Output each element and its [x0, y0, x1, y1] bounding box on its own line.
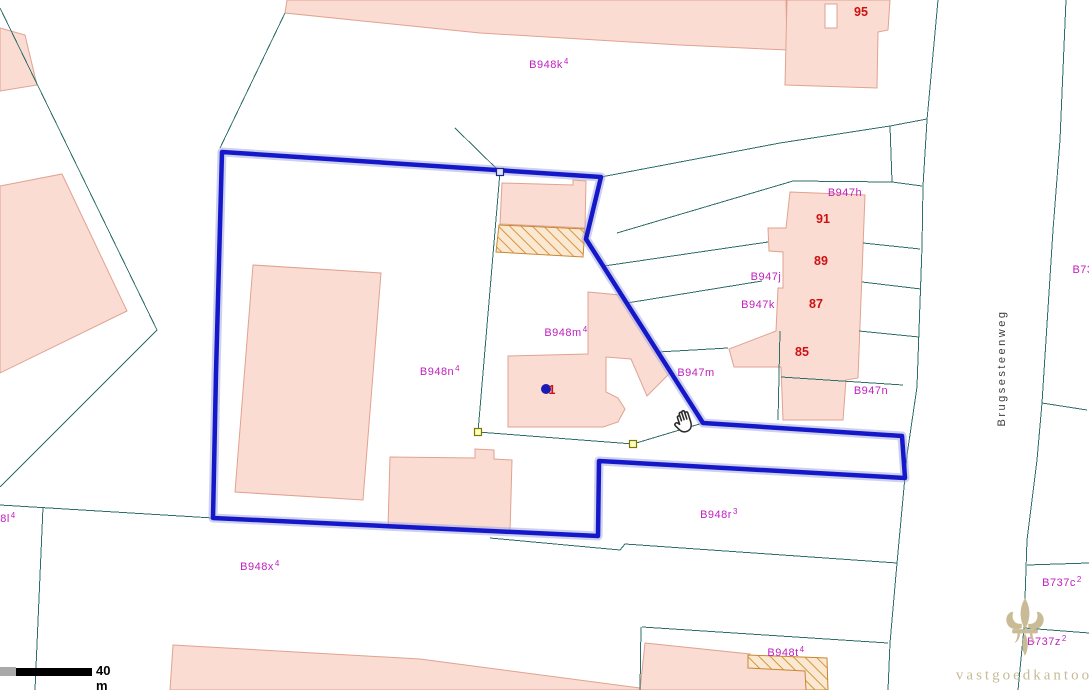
- parcel-boundary-line: [604, 242, 768, 266]
- scale-bar-gray-segment: [0, 667, 16, 676]
- building: [388, 449, 512, 533]
- parcel-boundary-line: [1024, 628, 1089, 633]
- parcel-boundary-line: [1027, 563, 1089, 565]
- parcel-boundary-line: [220, 13, 285, 148]
- scale-bar-black-segment: [16, 668, 92, 676]
- scale-bar-label: 40 m: [96, 663, 110, 690]
- parcel-boundary-line: [617, 181, 922, 233]
- building-courtyard: [825, 4, 837, 28]
- parcel-boundary-line: [1042, 403, 1087, 410]
- buildings-layer: [0, 0, 890, 690]
- hatched-building-part: [496, 225, 585, 257]
- parcel-boundary-line: [627, 281, 762, 303]
- parcel-boundary-line: [35, 507, 43, 690]
- building: [235, 265, 381, 500]
- parcel-boundary-line: [0, 505, 213, 518]
- building: [170, 645, 640, 690]
- street-name-label: Brugsesteenweg: [996, 310, 1008, 427]
- parcel-boundary-line: [490, 538, 897, 563]
- parcel-boundary-line: [863, 243, 920, 249]
- building: [0, 28, 37, 91]
- vertex-handle[interactable]: [497, 169, 504, 176]
- parcel-boundary-line: [1018, 0, 1066, 690]
- parcel-boundary-line: [658, 348, 728, 352]
- parcel-boundary-line: [890, 126, 892, 182]
- selected-point-marker: [541, 384, 551, 394]
- cadastral-map-canvas[interactable]: B948k495B947h9189B947jB947k8785B947mB947…: [0, 0, 1089, 690]
- building: [285, 0, 787, 50]
- parcel-boundary-line: [888, 0, 938, 690]
- parcel-boundary-line: [862, 282, 921, 289]
- parcel-boundary-line: [642, 627, 888, 643]
- map-drawing[interactable]: [0, 0, 1089, 690]
- vastgoedkantoor-watermark: vastgoedkantoor: [956, 668, 1089, 685]
- building: [729, 192, 865, 420]
- parcel-boundary-line: [601, 119, 927, 177]
- vertex-handle[interactable]: [630, 441, 637, 448]
- building: [500, 180, 586, 228]
- parcel-boundary-line: [478, 172, 500, 432]
- parcel-boundary-line: [859, 331, 919, 337]
- vertex-handle[interactable]: [475, 429, 482, 436]
- building: [0, 174, 127, 373]
- building: [508, 292, 672, 427]
- parcel-lines-layer: [0, 0, 1089, 690]
